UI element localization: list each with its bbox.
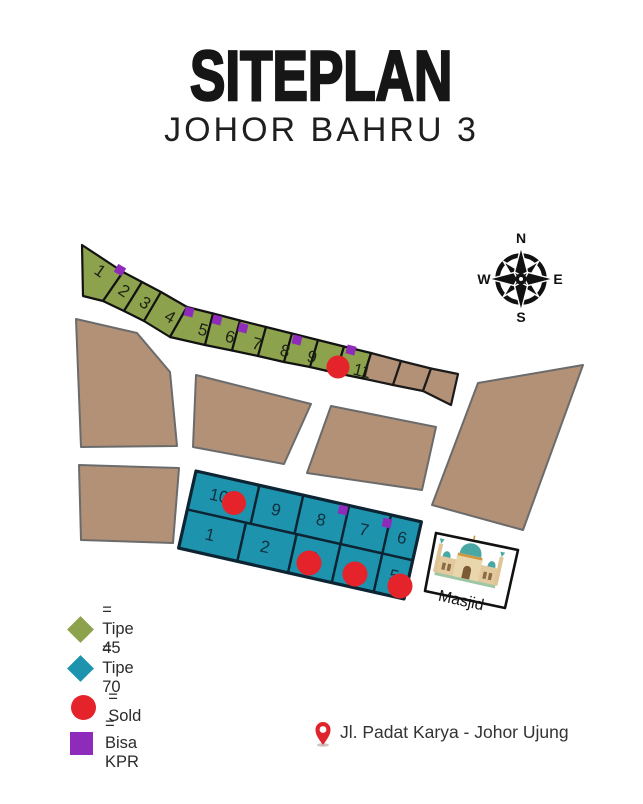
kpr-square-swatch: [70, 732, 93, 755]
reserved-block-left-small: [79, 465, 179, 543]
sold-marker: [343, 562, 368, 587]
address-row: Jl. Padat Karya - Johor Ujung: [312, 718, 569, 748]
legend-item-tipe70: = Tipe 70: [70, 653, 146, 683]
compass-label-w: W: [477, 271, 491, 287]
tipe45-diamond-swatch: [67, 616, 94, 643]
address-text: Jl. Padat Karya - Johor Ujung: [340, 722, 569, 748]
sold-marker: [297, 551, 322, 576]
reserved-block-mid-1: [193, 375, 311, 464]
location-pin-icon: [312, 718, 334, 748]
tipe70-diamond-swatch: [67, 655, 94, 682]
sold-marker: [222, 491, 246, 515]
legend-label: = Bisa KPR: [105, 715, 148, 772]
reserved-lot-strip-3: [423, 369, 458, 406]
siteplan-poster: SITEPLAN JOHOR BAHRU 3 N E S W: [0, 0, 643, 804]
compass-label-e: E: [553, 271, 562, 287]
reserved-block-mid-2: [307, 406, 436, 490]
siteplan-map: N E S W: [0, 0, 643, 804]
compass-rose: N E S W: [477, 230, 562, 325]
legend-item-bisa-kpr: = Bisa KPR: [70, 728, 148, 758]
sold-circle-swatch: [71, 695, 96, 720]
sold-marker: [388, 574, 413, 599]
compass-label-n: N: [516, 230, 526, 246]
sold-marker: [327, 356, 350, 379]
compass-label-s: S: [516, 309, 525, 325]
reserved-block-left-large: [76, 319, 177, 447]
